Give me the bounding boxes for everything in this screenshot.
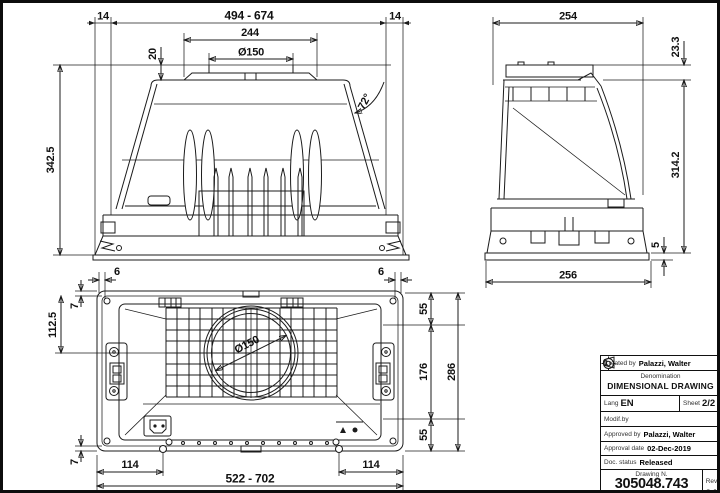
created-by-value: Palazzi, Walter — [639, 359, 691, 368]
approval-date-value: 02-Dec-2019 — [647, 444, 691, 453]
title-block-denomination-row: Denomination DIMENSIONAL DRAWING — [601, 371, 720, 396]
approved-by-value: Palazzi, Walter — [644, 430, 696, 439]
dim-side-flange-gap: 5 — [650, 242, 662, 248]
doc-status-label: Doc. status — [604, 459, 637, 466]
dim-side-top-width: 254 — [559, 11, 578, 23]
dim-front-offset-left: 14 — [97, 11, 110, 23]
modif-by-label: Modif.by — [604, 416, 629, 423]
title-block-lang-row: Lang EN Sheet 2/2 — [601, 396, 720, 412]
title-block-approved-row: Approved by Palazzi, Walter — [601, 427, 720, 442]
dimensional-drawing-page: 14 494 - 674 14 244 Ø150 20 72° 342.5 — [0, 0, 720, 493]
sheet-label: Sheet — [683, 400, 700, 407]
denomination-value: DIMENSIONAL DRAWING — [601, 381, 720, 391]
approval-date-label: Approval date — [604, 445, 644, 452]
dim-plan-176: 176 — [418, 363, 430, 381]
dim-front-side-angle: 72° — [356, 92, 374, 112]
plan-view-linework — [97, 291, 403, 453]
side-view-linework — [485, 62, 691, 260]
dim-plan-width-range: 522 - 702 — [226, 472, 275, 486]
dim-plan-edge-bottom: 7 — [69, 459, 81, 465]
front-view-dimensions: 14 494 - 674 14 244 Ø150 20 72° 342.5 — [45, 9, 411, 256]
lang-value: EN — [620, 398, 633, 409]
dim-plan-foot-right: 114 — [362, 459, 380, 471]
denomination-label: Denomination — [601, 373, 720, 380]
dim-plan-lip-left: 6 — [114, 266, 120, 278]
title-block-modif-row: Modif.by — [601, 412, 720, 427]
power-inlet-socket — [144, 416, 171, 436]
dim-plan-lip-right: 6 — [378, 266, 384, 278]
dim-front-collar-height: 20 — [147, 48, 159, 60]
approved-by-label: Approved by — [604, 431, 641, 438]
front-view-linework — [53, 17, 409, 260]
title-block-drawing-number-row: Drawing N. 305048.743 Rev 01 — [601, 470, 720, 493]
rating-label — [336, 422, 363, 433]
title-block: Created by Palazzi, Walter Denomination … — [600, 355, 720, 493]
lang-cell: Lang EN — [601, 396, 680, 411]
revision-cell: Rev 01 — [703, 470, 720, 493]
title-block-created-row: Created by Palazzi, Walter — [601, 356, 720, 371]
revision-value: 01 — [703, 488, 720, 493]
dim-front-offset-right: 14 — [389, 11, 402, 23]
drawing-number-cell: Drawing N. 305048.743 — [601, 470, 703, 493]
sheet-value: 2/2 — [702, 398, 715, 409]
dim-plan-foot-left: 114 — [121, 459, 139, 471]
dim-front-width-range: 494 - 674 — [225, 9, 274, 23]
dim-plan-55-bottom: 55 — [418, 429, 430, 441]
title-block-approval-date-row: Approval date 02-Dec-2019 — [601, 442, 720, 456]
dim-plan-55-top: 55 — [418, 303, 430, 315]
dim-plan-depth: 286 — [446, 363, 458, 381]
dim-side-bottom-width: 256 — [559, 270, 577, 282]
doc-status-value: Released — [640, 458, 673, 467]
revision-label: Rev — [706, 478, 718, 485]
side-view-dimensions: 254 23.3 314.2 5 256 — [486, 11, 684, 289]
dim-front-duct-diameter: Ø150 — [238, 47, 264, 59]
dim-front-height: 342.5 — [45, 147, 57, 174]
title-block-doc-status-row: Doc. status Released — [601, 456, 720, 470]
lang-label: Lang — [604, 400, 618, 407]
dim-plan-duct-offset: 112.5 — [47, 312, 59, 338]
sheet-cell: Sheet 2/2 — [680, 396, 720, 411]
dim-plan-edge-top: 7 — [69, 303, 81, 309]
dim-front-duct-plate: 244 — [241, 27, 260, 39]
dim-side-collar-height: 23.3 — [670, 37, 682, 58]
dim-side-body-height: 314.2 — [670, 152, 682, 179]
drawing-number-value: 305048.743 — [601, 478, 702, 491]
